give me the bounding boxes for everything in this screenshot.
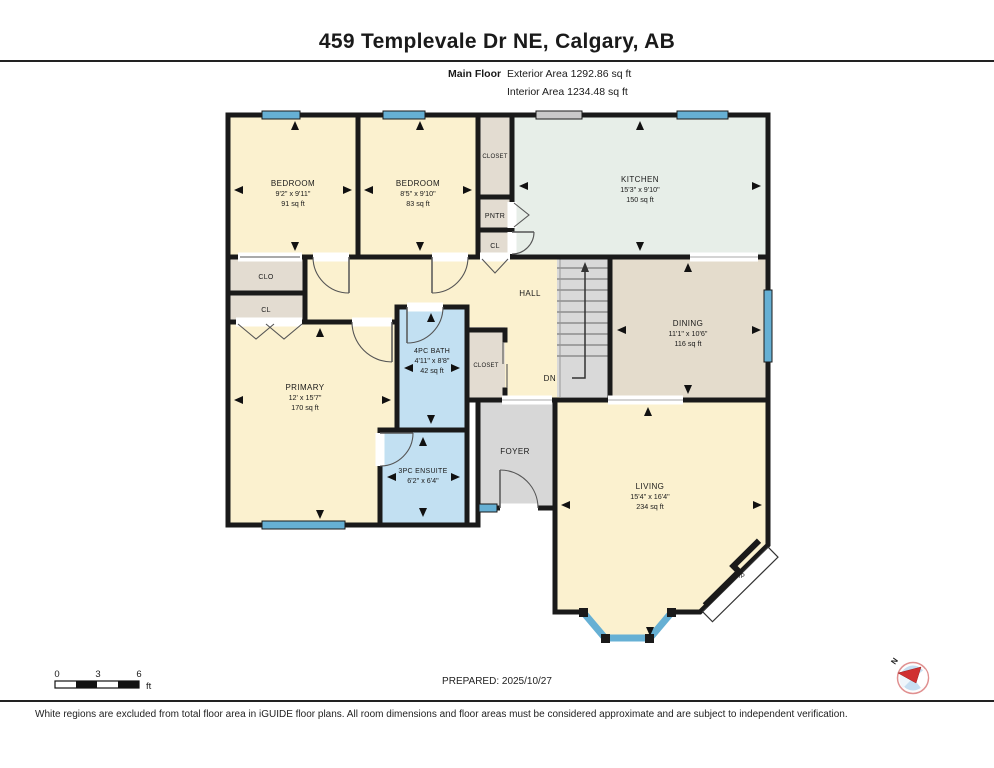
primary-name: PRIMARY <box>285 383 324 392</box>
floor-plan: F/P BEDROOM 9'2" x 9'11" 91 sq ft BEDROO… <box>0 0 994 768</box>
compass-north-label: N <box>889 656 900 666</box>
cl-left-label: CL <box>261 307 271 314</box>
living-area: 234 sq ft <box>636 502 664 511</box>
dining-dims: 11'1" x 10'6" <box>669 329 708 338</box>
fireplace-label: F/P <box>735 574 745 580</box>
prepared-date: PREPARED: 2025/10/27 <box>0 676 994 687</box>
closet-mid-label: CLOSET <box>473 363 498 369</box>
bedroom-1-name: BEDROOM <box>271 179 315 188</box>
stairs-down-label: DN <box>544 374 556 383</box>
window-bedroom-2 <box>383 111 425 119</box>
closet-top-label: CLOSET <box>482 154 507 160</box>
window-foyer <box>479 504 497 512</box>
bedroom-1-area: 91 sq ft <box>281 199 305 208</box>
bedroom-2-name: BEDROOM <box>396 179 440 188</box>
foyer-label: FOYER <box>500 447 530 456</box>
bedroom-1-dims: 9'2" x 9'11" <box>276 189 311 198</box>
bedroom-2-area: 83 sq ft <box>406 199 430 208</box>
kitchen-dims: 15'3" x 9'10" <box>620 185 660 194</box>
window-bedroom-1 <box>262 111 300 119</box>
room-living-floor <box>555 400 768 638</box>
kitchen-area: 150 sq ft <box>626 195 654 204</box>
living-dims: 15'4" x 16'4" <box>630 492 670 501</box>
stairs-floor <box>557 257 610 397</box>
bath-area: 42 sq ft <box>420 366 444 375</box>
cl-top-label: CL <box>490 243 500 250</box>
pantry-label: PNTR <box>485 213 505 220</box>
window-dining <box>764 290 772 362</box>
bath-dims: 4'11" x 8'8" <box>415 356 450 365</box>
kitchen-name: KITCHEN <box>621 175 659 184</box>
bath-name: 4PC BATH <box>414 348 450 355</box>
slider-kitchen <box>536 111 582 119</box>
dining-name: DINING <box>673 319 703 328</box>
living-name: LIVING <box>636 482 665 491</box>
primary-area: 170 sq ft <box>291 403 319 412</box>
disclaimer-text: White regions are excluded from total fl… <box>35 709 975 720</box>
ensuite-dims: 6'2" x 6'4" <box>407 476 439 485</box>
primary-dims: 12' x 15'7" <box>289 393 322 402</box>
ensuite-name: 3PC ENSUITE <box>398 468 447 475</box>
window-primary <box>262 521 345 529</box>
hall-label: HALL <box>519 289 541 298</box>
room-primary-floor <box>228 322 397 525</box>
footer-divider <box>0 700 994 702</box>
closet-column-floor <box>478 115 512 257</box>
clo-left-label: CLO <box>258 274 274 281</box>
window-kitchen <box>677 111 728 119</box>
bedroom-2-dims: 8'5" x 9'10" <box>400 189 436 198</box>
dining-area: 116 sq ft <box>674 339 701 348</box>
compass: N <box>889 656 928 693</box>
